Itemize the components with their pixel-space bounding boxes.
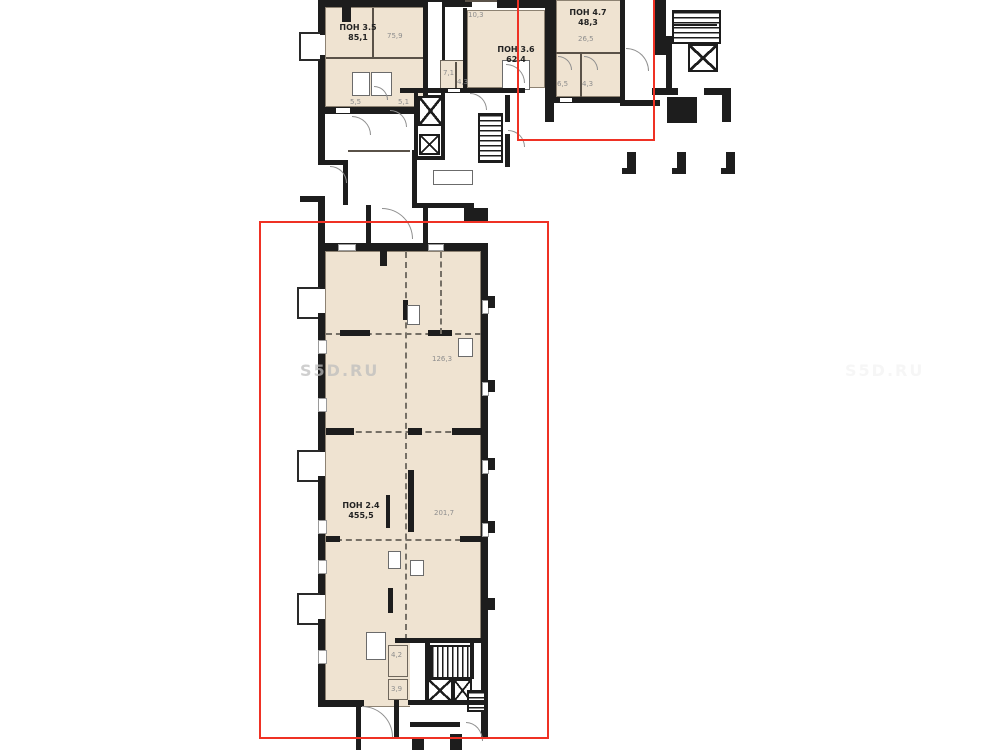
highlight-box-bottom — [259, 221, 549, 739]
bath-fixture — [352, 72, 370, 96]
dim-label: 5,5 — [350, 99, 361, 106]
column-mark — [677, 152, 686, 174]
wall-segment — [441, 92, 445, 158]
elevator-shaft — [419, 134, 440, 155]
wall-segment — [414, 156, 445, 160]
stairs — [478, 113, 503, 163]
wall-segment — [464, 208, 488, 222]
column-mark — [721, 168, 727, 174]
dim-label: 75,9 — [387, 33, 403, 40]
floor-plan-canvas: ПОН 3.5 85,1 ПОН 3.6 62,4 ПОН 4.7 48,3 П… — [0, 0, 1000, 750]
wall-segment — [318, 114, 325, 162]
wall-segment — [722, 88, 731, 122]
column-mark — [627, 152, 636, 174]
unit-name: ПОН 3.5 — [330, 23, 386, 33]
elevator-shaft — [418, 96, 443, 126]
wall-segment — [412, 150, 417, 208]
wall-segment — [505, 95, 510, 122]
stairs — [672, 10, 721, 44]
wall-segment — [342, 0, 351, 22]
dim-label: 10,3 — [468, 12, 484, 19]
window-line — [465, 0, 497, 2]
wall-segment — [318, 0, 325, 35]
dim-label: 7,1 — [443, 70, 454, 77]
wall-segment — [414, 92, 418, 158]
partition — [326, 57, 425, 59]
door-opening — [448, 89, 460, 92]
column-mark — [726, 152, 735, 174]
niche — [433, 170, 473, 185]
elevator-shaft — [688, 44, 718, 72]
wall-segment — [318, 107, 428, 114]
watermark-faint: S5D.RU — [845, 361, 924, 380]
wall-segment — [318, 55, 325, 112]
partition — [348, 150, 410, 152]
unit-label-3-5: ПОН 3.5 85,1 — [330, 23, 386, 43]
column-mark — [672, 168, 678, 174]
wall-segment — [655, 0, 666, 55]
highlight-box-top — [517, 0, 655, 141]
wall-segment — [652, 88, 678, 95]
balcony-door — [299, 32, 320, 61]
wall-segment — [667, 97, 697, 123]
unit-area: 85,1 — [330, 33, 386, 43]
door-opening — [336, 108, 350, 113]
column-mark — [622, 168, 628, 174]
dim-label: 5,1 — [398, 99, 409, 106]
stair-landing — [672, 24, 717, 26]
door-arc — [470, 93, 487, 110]
dim-label: 4,3 — [457, 79, 468, 86]
wall-segment — [666, 36, 672, 88]
wall-segment — [412, 738, 424, 750]
wall-segment — [704, 88, 722, 95]
door-arc — [352, 116, 371, 135]
